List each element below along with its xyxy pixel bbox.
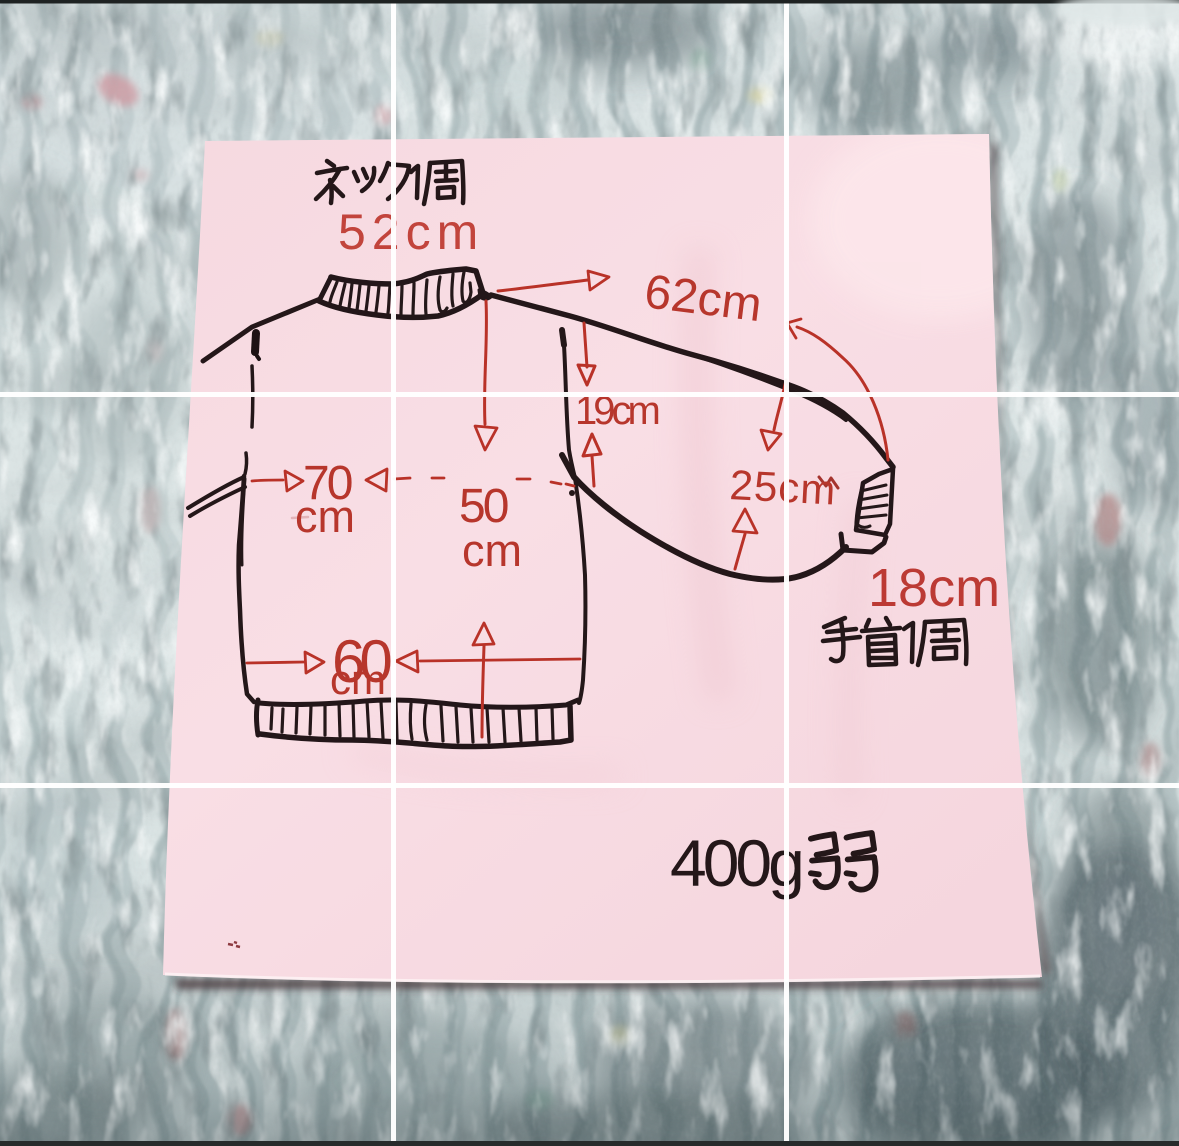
svg-text:18cm: 18cm [868, 558, 1000, 618]
svg-text:cm: cm [462, 525, 522, 576]
svg-text:cm: cm [330, 656, 386, 703]
svg-text:25cm: 25cm [729, 461, 838, 514]
svg-text:52cm: 52cm [338, 204, 484, 260]
svg-text:400g: 400g [670, 826, 801, 900]
svg-text:cm: cm [295, 491, 355, 542]
